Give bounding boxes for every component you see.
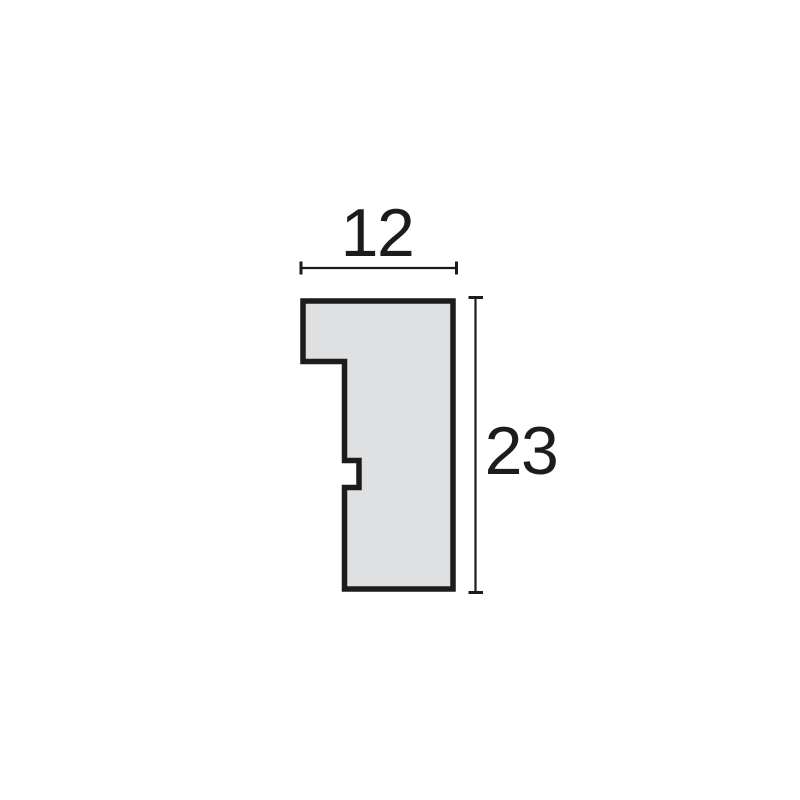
height-dimension: 23 [469, 298, 558, 593]
height-dimension-label: 23 [485, 413, 558, 489]
profile-diagram-svg: 12 23 [0, 0, 800, 800]
width-dimension: 12 [301, 195, 457, 275]
diagram-canvas: 12 23 [0, 0, 800, 800]
width-dimension-label: 12 [341, 195, 414, 271]
profile-shape [303, 301, 453, 589]
